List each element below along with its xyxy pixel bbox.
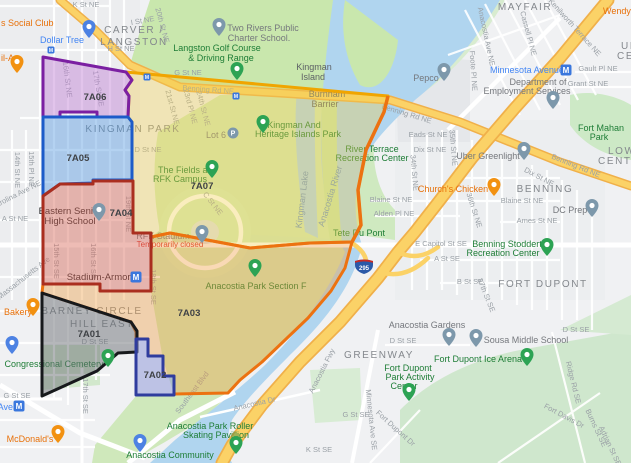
poi-label[interactable]: Island xyxy=(301,72,325,82)
neighborhood-label: CARVER / xyxy=(104,25,164,36)
streetcar-stop-icon[interactable]: M xyxy=(233,93,240,101)
svg-text:M: M xyxy=(16,402,23,411)
poi-label[interactable]: Langston Golf Course xyxy=(173,43,261,53)
poi-label[interactable]: Sousa Middle School xyxy=(484,335,569,345)
poi-label[interactable]: Park xyxy=(590,132,609,142)
metro-potomac-ave-icon[interactable]: M xyxy=(14,401,25,412)
street-label: Blaine St NE xyxy=(501,196,544,205)
poi-label[interactable]: Pepco xyxy=(413,73,439,83)
neighborhood-label: CENTRAL xyxy=(617,51,631,62)
svg-text:295: 295 xyxy=(359,266,370,272)
streetcar-stop-icon[interactable]: M xyxy=(144,74,151,82)
poi-label[interactable]: Anacostia Community xyxy=(126,450,214,460)
district-label-7A04: 7A04 xyxy=(110,208,133,219)
neighborhood-label: MAYFAIR xyxy=(498,2,552,13)
poi-label[interactable]: Wendy's xyxy=(603,6,631,16)
street-label: 14th St NE xyxy=(13,152,22,188)
poi-label[interactable]: Church's Chicken xyxy=(418,184,488,194)
street-label: A St NE xyxy=(2,214,28,223)
poi-label[interactable]: Fort Dupont Ice Arena xyxy=(434,354,522,364)
map-canvas[interactable]: K St NEI St NEH St NEG St NE20th St NE16… xyxy=(0,0,631,463)
poi-label[interactable]: McDonald's xyxy=(7,434,54,444)
district-label-7A02: 7A02 xyxy=(144,370,167,381)
street-label: Blaine St NE xyxy=(370,195,413,204)
poi-label[interactable]: Anacostia Gardens xyxy=(389,320,466,330)
street-label: G St SE xyxy=(3,391,30,400)
district-label-7A05: 7A05 xyxy=(67,153,90,164)
street-label: K St NE xyxy=(73,0,100,9)
streetcar-stop-icon[interactable]: M xyxy=(48,47,55,55)
poi-label[interactable]: Uber Greenlight xyxy=(456,151,520,161)
district-label-7A01: 7A01 xyxy=(78,329,101,340)
street-label: 17th St SE xyxy=(81,378,90,414)
neighborhood-label: LANGSTON xyxy=(100,37,168,48)
poi-label[interactable]: & Driving Range xyxy=(188,53,254,63)
poi-label[interactable]: Ave xyxy=(0,402,13,412)
svg-text:M: M xyxy=(563,66,570,75)
street-label: Grant St NE xyxy=(568,79,608,88)
svg-text:M: M xyxy=(133,273,140,282)
neighborhood-label: FORT DUPONT xyxy=(498,279,587,290)
poi-label[interactable]: Kingman xyxy=(296,62,332,72)
svg-text:M: M xyxy=(145,75,149,81)
poi-label[interactable]: Minnesota Avenue xyxy=(490,65,564,75)
metro-minnesota-avenue-icon[interactable]: M xyxy=(561,65,572,76)
svg-text:M: M xyxy=(49,48,53,54)
poi-label[interactable]: Charter School. xyxy=(228,33,291,43)
poi-label[interactable]: Two Rivers Public xyxy=(227,23,299,33)
street-label: Gault Pl NE xyxy=(578,64,617,73)
district-label-7A07: 7A07 xyxy=(191,181,214,192)
district-label-7A03: 7A03 xyxy=(178,308,201,319)
street-label: A St SE xyxy=(434,254,460,263)
street-label: D St SE xyxy=(563,325,590,334)
street-label: Dix St NE xyxy=(414,145,447,154)
neighborhood-label: BENNING xyxy=(517,184,574,195)
street-label: D St SE xyxy=(390,336,417,345)
street-label: Eads St NE xyxy=(409,130,448,139)
district-label-7A06: 7A06 xyxy=(84,92,107,103)
poi-label[interactable]: Dollar Tree xyxy=(40,35,84,45)
street-label: G St SE xyxy=(342,410,369,419)
street-label: E Capitol St SE xyxy=(415,239,467,248)
street-label: Alden Pl NE xyxy=(374,209,414,218)
lot6-parking-marker[interactable]: P xyxy=(228,128,239,139)
neighborhood-label: CENTRAL xyxy=(598,156,631,167)
svg-text:P: P xyxy=(231,131,236,138)
metro-stadium-armory-icon[interactable]: M xyxy=(131,272,142,283)
poi-label[interactable]: s Social Club xyxy=(1,18,54,28)
poi-label[interactable]: DC Prep xyxy=(553,205,588,215)
poi-label[interactable]: Recreation Center xyxy=(466,248,539,258)
street-label: K St SE xyxy=(306,445,332,454)
district-7A07-polygon[interactable] xyxy=(125,72,388,248)
neighborhood-label: GREENWAY xyxy=(344,350,414,361)
map-svg[interactable]: K St NEI St NEH St NEG St NE20th St NE16… xyxy=(0,0,631,463)
street-label: Ames St NE xyxy=(517,216,558,225)
svg-text:M: M xyxy=(234,94,238,100)
